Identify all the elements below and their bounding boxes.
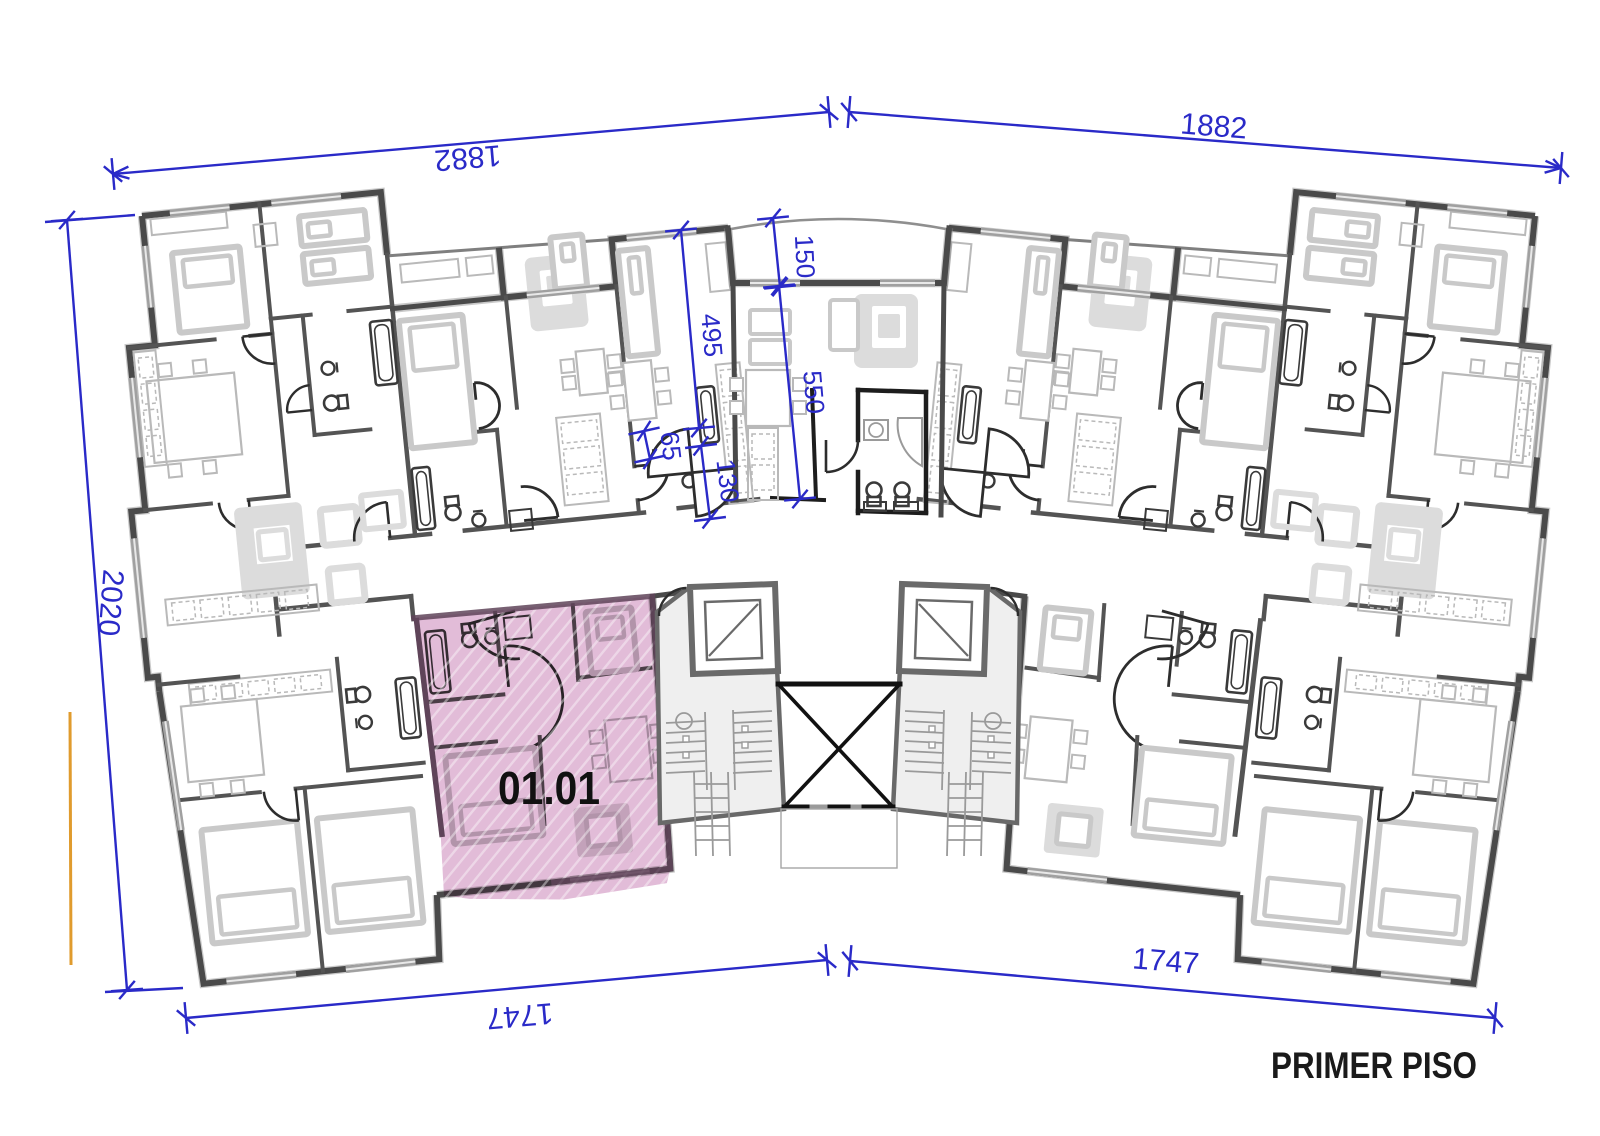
svg-text:2020: 2020 xyxy=(91,568,129,637)
svg-text:1882: 1882 xyxy=(1179,107,1248,145)
svg-text:495: 495 xyxy=(695,312,729,358)
svg-text:PRIMER PISO: PRIMER PISO xyxy=(1271,1045,1477,1086)
svg-text:65: 65 xyxy=(654,430,687,462)
svg-text:150: 150 xyxy=(789,234,821,279)
svg-text:1747: 1747 xyxy=(1131,942,1200,980)
svg-text:130: 130 xyxy=(710,458,745,505)
svg-text:1747: 1747 xyxy=(485,996,554,1035)
svg-text:550: 550 xyxy=(797,369,831,415)
svg-text:1882: 1882 xyxy=(433,138,502,177)
svg-text:01.01: 01.01 xyxy=(498,762,600,814)
